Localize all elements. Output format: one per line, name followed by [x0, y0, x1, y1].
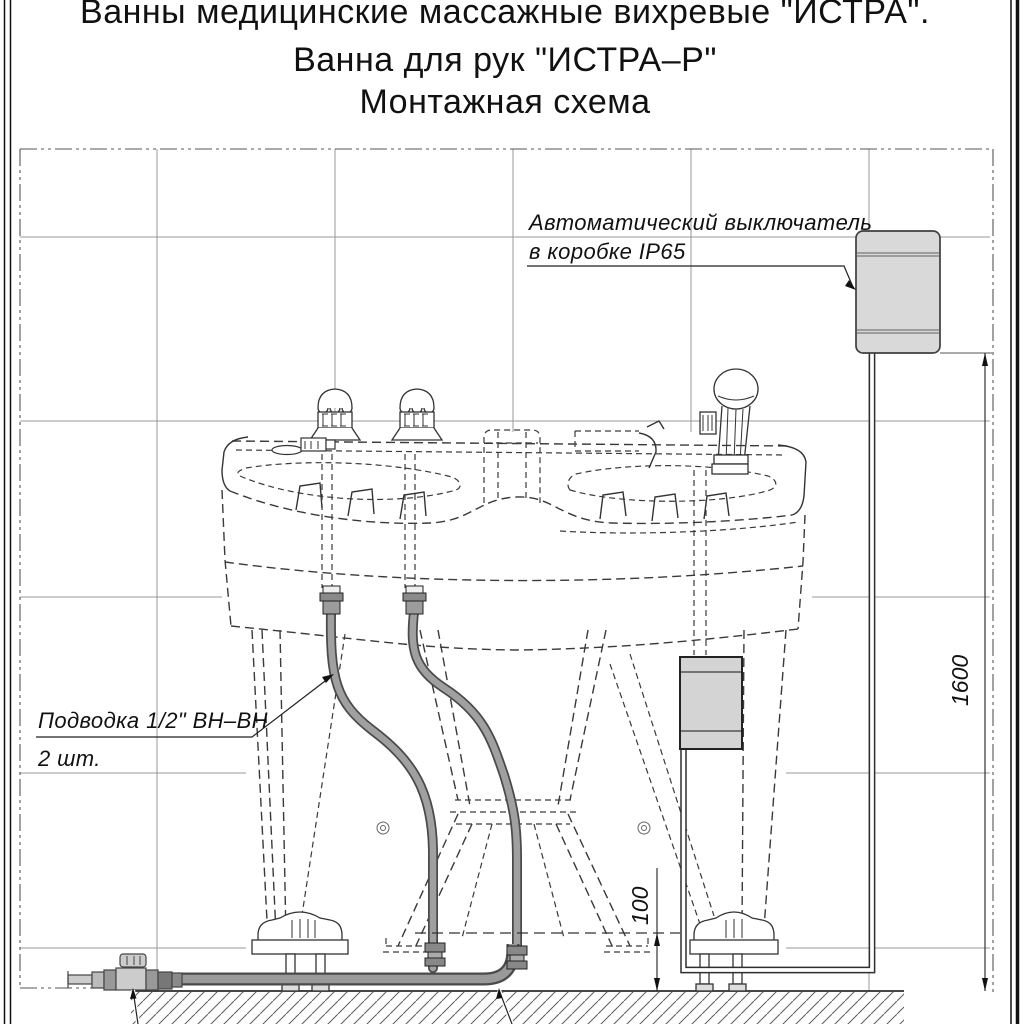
title-line2: Ванна для рук "ИСТРА–Р": [293, 41, 717, 79]
air-control-knob-right: [392, 389, 442, 440]
floor-hatching: [131, 992, 904, 1024]
supply-label-line2: 2 шт.: [37, 746, 101, 771]
shutoff-valve: [68, 954, 182, 990]
installation-drawing: 1600 100 Автоматический выключатель в ко…: [0, 0, 1024, 1024]
breaker-label-line2: в коробке IP65: [529, 239, 686, 264]
air-control-knob-left: [310, 389, 360, 440]
supply-label-line1: Подводка 1/2" ВН–ВН: [38, 708, 268, 733]
dim-100-text: 100: [627, 886, 653, 925]
leader-line: [527, 266, 853, 287]
arrow-down: [982, 978, 988, 991]
breaker-box: [856, 231, 940, 353]
arrow-up: [982, 353, 988, 366]
breaker-annotation: Автоматический выключатель в коробке IP6…: [527, 210, 872, 290]
breaker-label-line1: Автоматический выключатель: [527, 210, 872, 235]
dim-1600-text: 1600: [947, 655, 973, 706]
title-line3: Монтажная схема: [359, 83, 650, 121]
dimension-1600: 1600: [940, 353, 992, 991]
drawing-title: Ванны медицинские массажные вихревые "ИС…: [80, 0, 930, 121]
control-box: [680, 657, 742, 749]
floor: [131, 991, 904, 1024]
title-line1: Ванны медицинские массажные вихревые "ИС…: [80, 0, 930, 31]
